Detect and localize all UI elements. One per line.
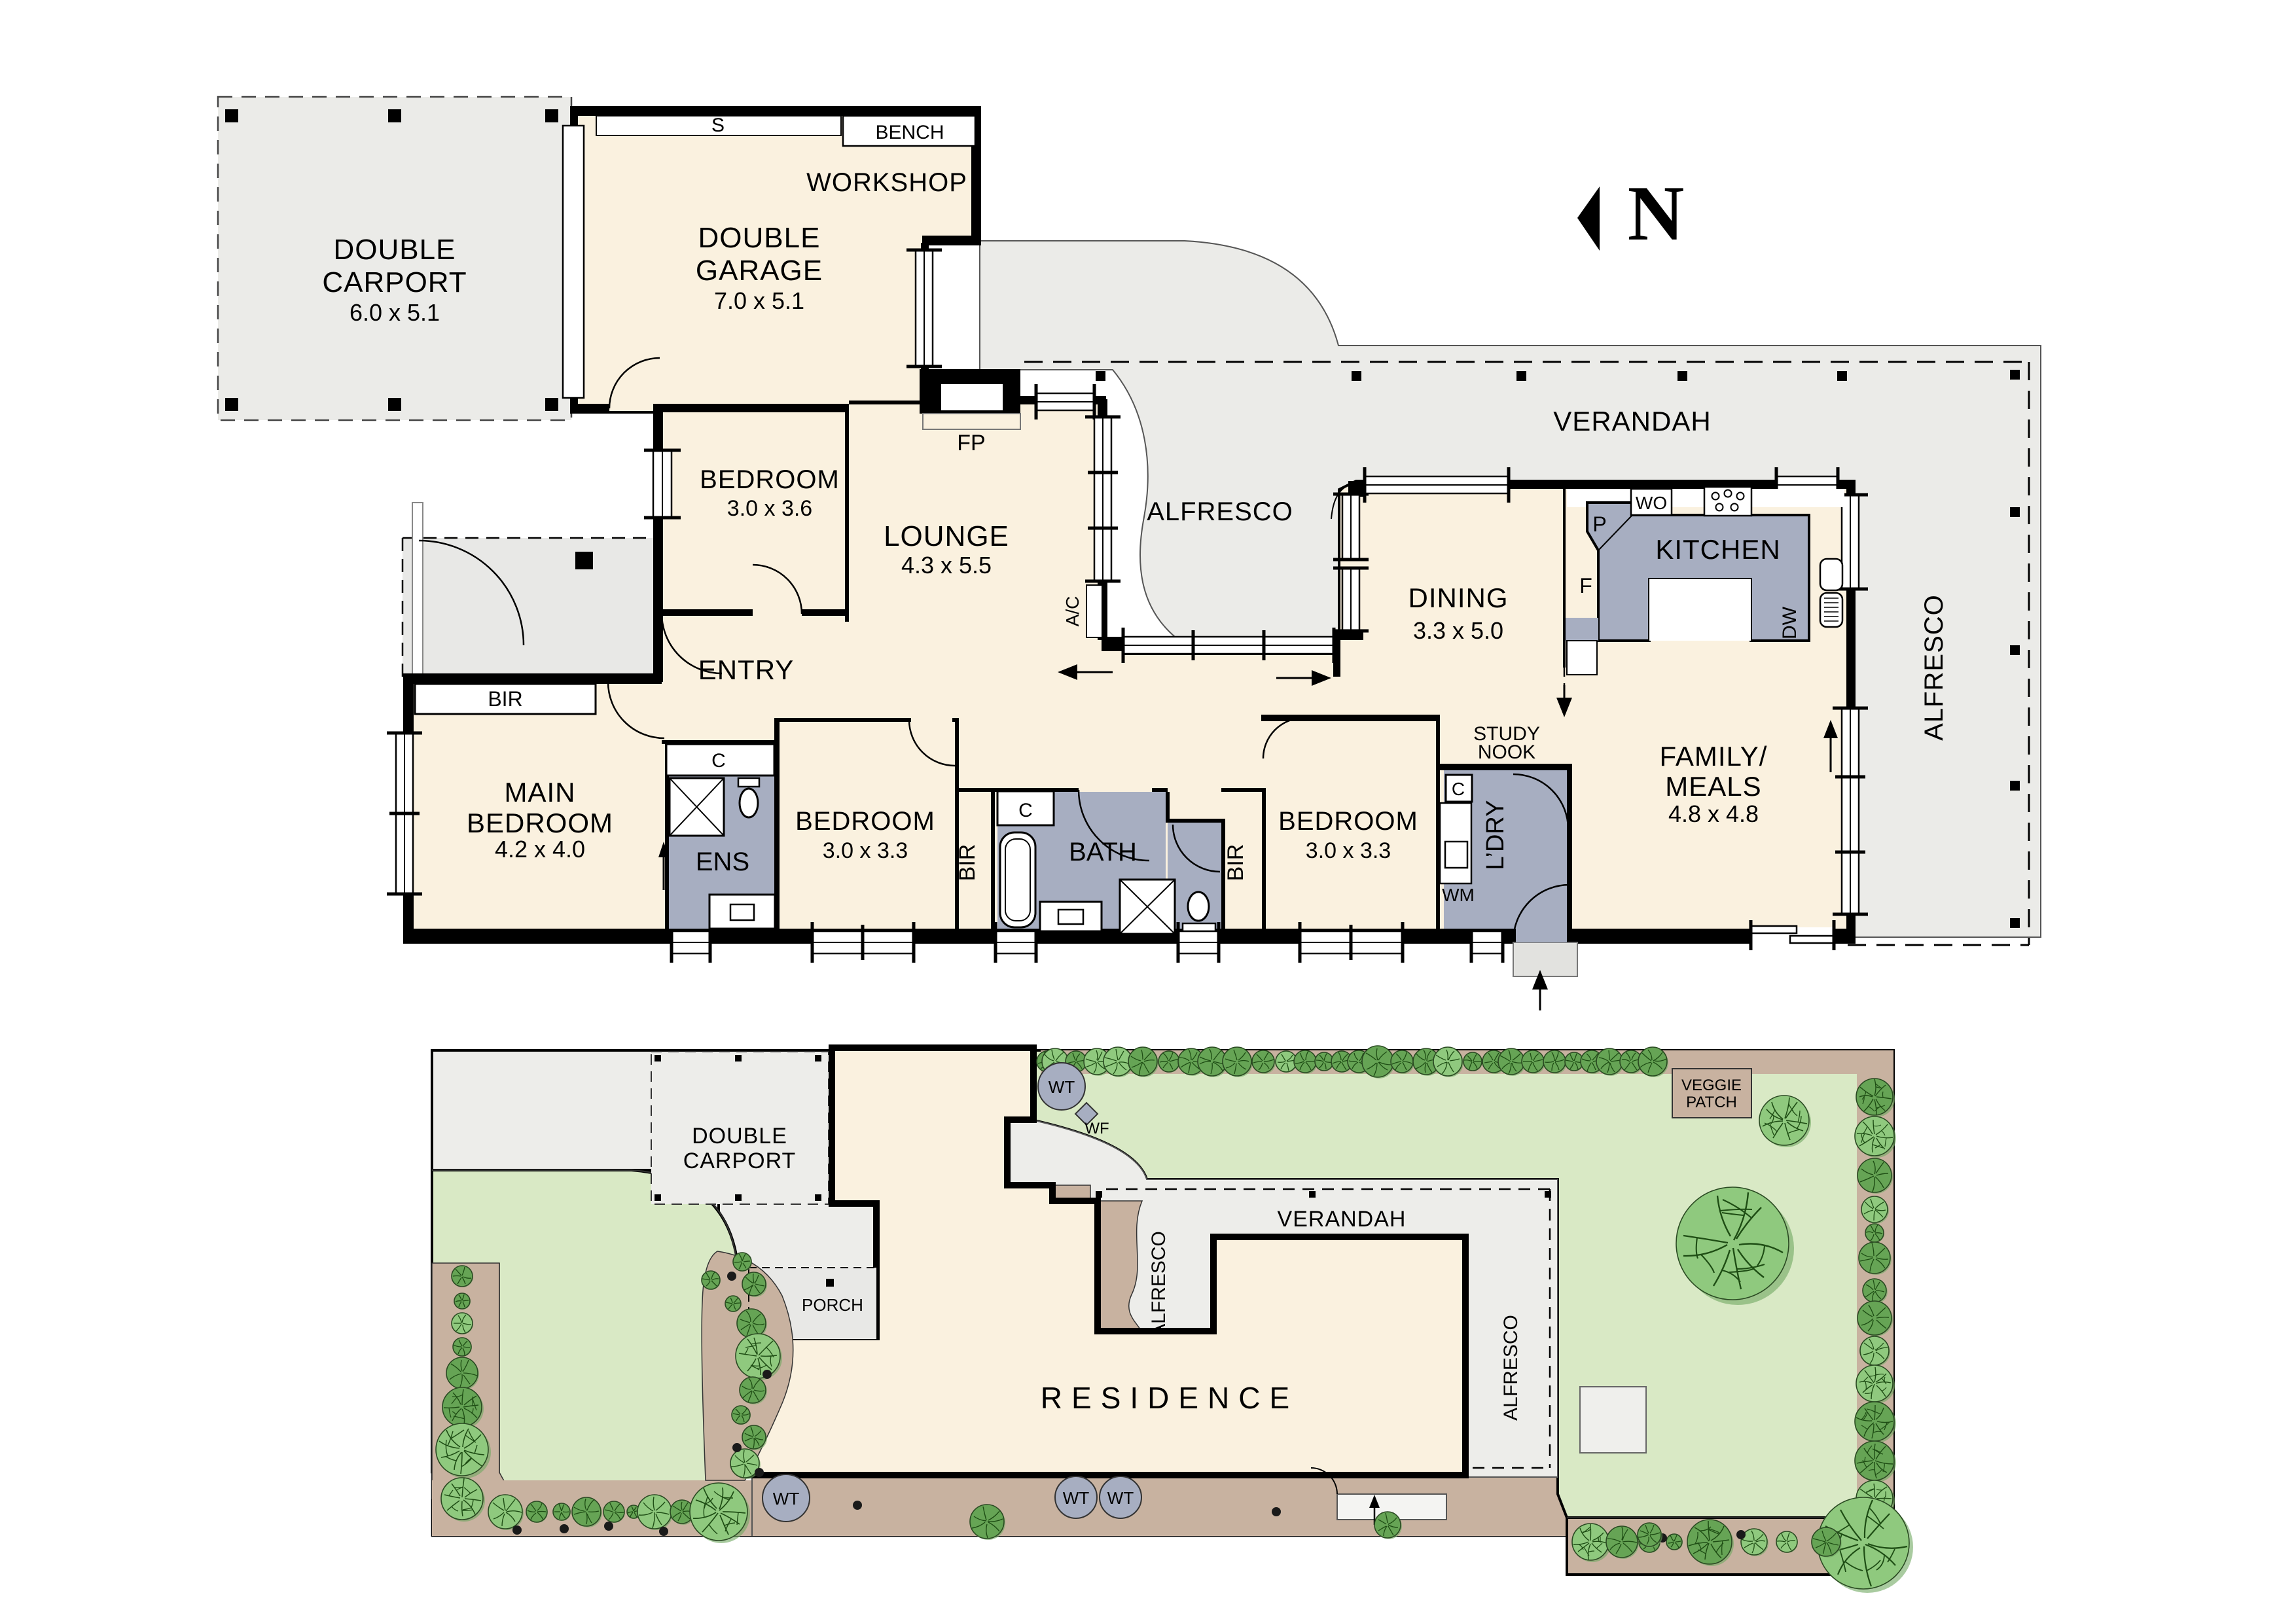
svg-text:CARPORT: CARPORT	[322, 266, 467, 298]
svg-text:BEDROOM: BEDROOM	[795, 807, 935, 836]
svg-text:3.0 x 3.3: 3.0 x 3.3	[823, 838, 908, 863]
svg-text:C: C	[711, 750, 726, 772]
svg-text:ALFRESCO: ALFRESCO	[1148, 1231, 1170, 1337]
svg-text:WM: WM	[1442, 885, 1475, 905]
svg-text:BIR: BIR	[1223, 844, 1248, 882]
svg-text:VEGGIE: VEGGIE	[1681, 1077, 1742, 1094]
svg-text:WT: WT	[1063, 1488, 1090, 1508]
svg-text:VERANDAH: VERANDAH	[1553, 406, 1711, 437]
svg-text:3.3 x 5.0: 3.3 x 5.0	[1413, 617, 1503, 644]
svg-text:C: C	[1452, 779, 1465, 799]
svg-text:DOUBLE: DOUBLE	[692, 1124, 787, 1149]
svg-text:BEDROOM: BEDROOM	[700, 465, 840, 494]
svg-text:BEDROOM: BEDROOM	[1278, 807, 1418, 836]
svg-text:VERANDAH: VERANDAH	[1278, 1207, 1407, 1232]
svg-text:ALFRESCO: ALFRESCO	[1500, 1315, 1522, 1421]
svg-text:ENTRY: ENTRY	[698, 654, 795, 685]
svg-text:F: F	[1579, 574, 1592, 597]
svg-text:DW: DW	[1779, 606, 1801, 639]
svg-text:N: N	[1628, 169, 1685, 257]
svg-text:6.0 x 5.1: 6.0 x 5.1	[350, 299, 440, 326]
svg-text:MAIN: MAIN	[505, 777, 576, 808]
svg-text:PATCH: PATCH	[1686, 1094, 1737, 1111]
svg-text:ALFRESCO: ALFRESCO	[1920, 594, 1948, 741]
svg-text:BIR: BIR	[955, 844, 980, 882]
svg-text:3.0 x 3.6: 3.0 x 3.6	[727, 496, 812, 521]
svg-text:FAMILY/: FAMILY/	[1660, 741, 1768, 772]
svg-text:ENS: ENS	[696, 847, 749, 876]
svg-text:DOUBLE: DOUBLE	[698, 222, 821, 254]
svg-text:WORKSHOP: WORKSHOP	[806, 168, 967, 197]
svg-text:CARPORT: CARPORT	[683, 1149, 797, 1173]
svg-text:PORCH: PORCH	[802, 1295, 863, 1315]
svg-text:DINING: DINING	[1408, 582, 1509, 613]
svg-text:WT: WT	[1107, 1488, 1134, 1508]
svg-text:BEDROOM: BEDROOM	[467, 808, 613, 838]
svg-text:DOUBLE: DOUBLE	[334, 234, 456, 266]
svg-text:A/C: A/C	[1062, 596, 1083, 627]
svg-text:S: S	[711, 115, 725, 136]
svg-text:BATH: BATH	[1069, 838, 1137, 866]
svg-text:LOUNGE: LOUNGE	[884, 520, 1009, 552]
svg-text:ALFRESCO: ALFRESCO	[1147, 497, 1293, 526]
svg-text:C: C	[1018, 800, 1033, 821]
svg-text:KITCHEN: KITCHEN	[1655, 534, 1780, 565]
svg-text:NOOK: NOOK	[1478, 741, 1535, 763]
svg-text:4.8 x 4.8: 4.8 x 4.8	[1668, 800, 1759, 827]
svg-text:7.0 x 5.1: 7.0 x 5.1	[714, 287, 804, 314]
svg-text:WT: WT	[1049, 1077, 1075, 1097]
svg-text:P: P	[1592, 512, 1606, 536]
svg-text:BENCH: BENCH	[875, 122, 944, 143]
svg-text:MEALS: MEALS	[1665, 771, 1761, 802]
svg-text:FP: FP	[957, 431, 985, 455]
svg-text:3.0 x 3.3: 3.0 x 3.3	[1306, 838, 1391, 863]
svg-text:4.2 x 4.0: 4.2 x 4.0	[495, 836, 585, 863]
svg-text:GARAGE: GARAGE	[696, 255, 823, 287]
svg-text:BIR: BIR	[488, 687, 522, 711]
svg-text:4.3 x 5.5: 4.3 x 5.5	[901, 552, 992, 579]
svg-text:WT: WT	[773, 1489, 800, 1508]
svg-text:WO: WO	[1636, 493, 1667, 513]
svg-text:RESIDENCE: RESIDENCE	[1041, 1381, 1299, 1415]
svg-text:L’DRY: L’DRY	[1482, 800, 1509, 870]
svg-text:WF: WF	[1085, 1120, 1109, 1137]
